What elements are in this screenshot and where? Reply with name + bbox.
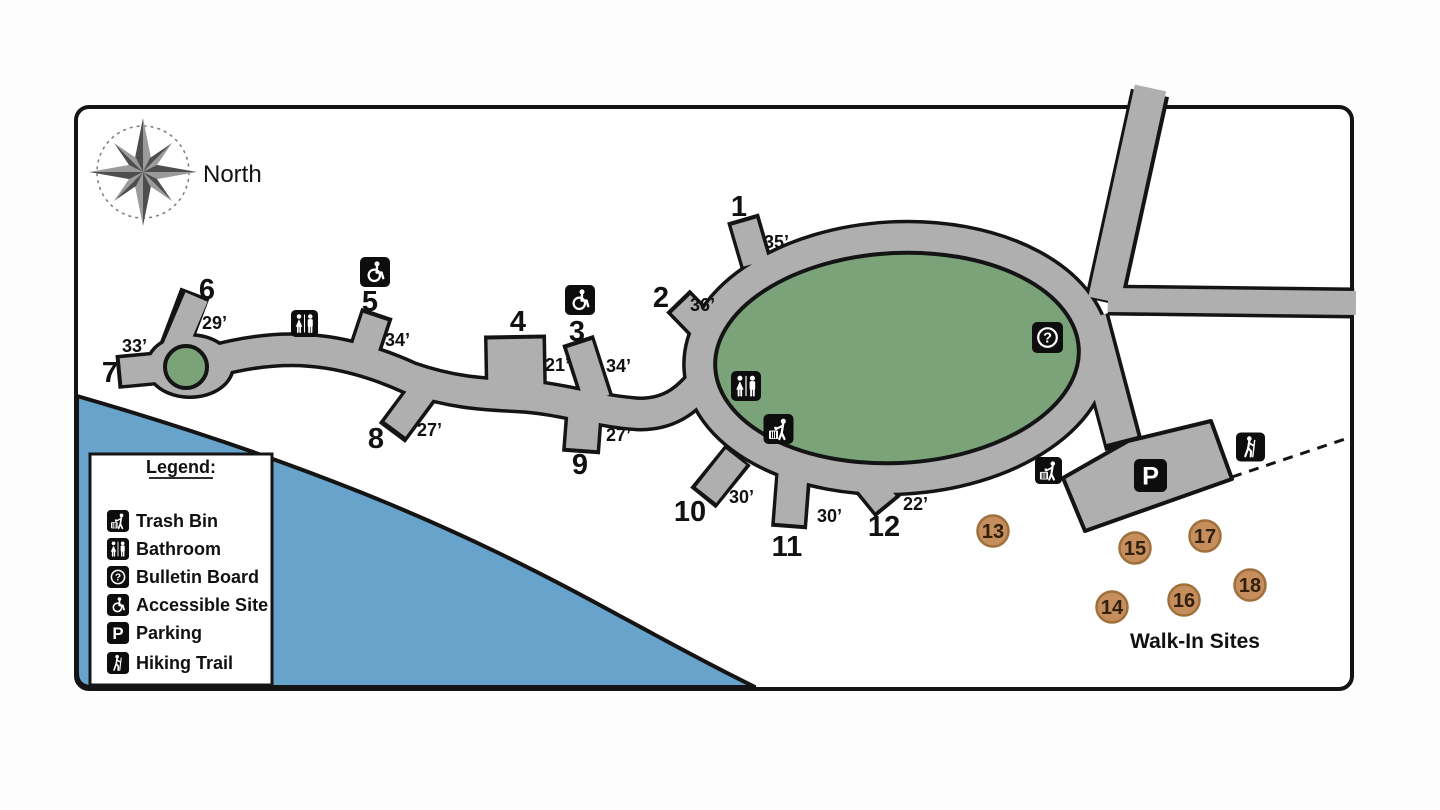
site-number: 3 bbox=[569, 316, 585, 348]
walk-in-site-number: 16 bbox=[1173, 590, 1195, 612]
legend-item-label: Accessible Site bbox=[136, 595, 268, 615]
site-number: 12 bbox=[868, 511, 900, 543]
walk-in-sites-label: Walk-In Sites bbox=[1130, 630, 1260, 653]
hiking-trail-icon bbox=[1236, 433, 1265, 462]
east-exit-road bbox=[1108, 300, 1356, 303]
legend-item-label: Parking bbox=[136, 623, 202, 643]
trash-bin-icon bbox=[107, 510, 129, 532]
site-distance: 30’ bbox=[817, 506, 842, 526]
site-spur-11 bbox=[789, 466, 793, 524]
site-distance: 34’ bbox=[385, 330, 410, 350]
bulletin-board-icon bbox=[107, 566, 129, 588]
site-spur-5 bbox=[361, 317, 376, 361]
site-spur-4 bbox=[515, 339, 516, 391]
legend-item-label: Bulletin Board bbox=[136, 567, 259, 587]
north-label: North bbox=[203, 161, 262, 188]
walk-in-site-marker: 14 bbox=[1097, 592, 1128, 623]
site-number: 5 bbox=[362, 286, 378, 318]
legend-item-label: Trash Bin bbox=[136, 511, 218, 531]
legend: Legend: Trash Bin Bathroom Bulletin Boar… bbox=[90, 454, 272, 685]
legend-item: Bathroom bbox=[107, 538, 221, 560]
site-number: 9 bbox=[572, 449, 588, 481]
walk-in-site-number: 18 bbox=[1239, 575, 1261, 597]
walk-in-site-number: 14 bbox=[1101, 597, 1124, 619]
site-distance: 30’ bbox=[729, 487, 754, 507]
site-number: 2 bbox=[653, 282, 669, 314]
walk-in-site-number: 17 bbox=[1194, 526, 1216, 548]
walk-in-site-marker: 18 bbox=[1235, 570, 1266, 601]
site-number: 11 bbox=[772, 531, 803, 563]
site-distance: 35’ bbox=[764, 232, 789, 252]
site-spur-9 bbox=[581, 400, 585, 449]
site-number: 4 bbox=[510, 306, 526, 338]
site-number: 7 bbox=[102, 357, 118, 389]
legend-item: Parking bbox=[107, 622, 202, 644]
bathroom-icon bbox=[107, 538, 129, 560]
accessible-site-icon bbox=[360, 257, 390, 287]
site-distance: 34’ bbox=[606, 356, 631, 376]
walk-in-site-number: 15 bbox=[1124, 538, 1146, 560]
site-spur-1 bbox=[744, 222, 756, 263]
hiking-trail-icon bbox=[107, 652, 129, 674]
site-number: 6 bbox=[199, 274, 215, 306]
site-number: 10 bbox=[674, 496, 706, 528]
site-distance: 29’ bbox=[202, 313, 227, 333]
walk-in-site-marker: 16 bbox=[1169, 585, 1200, 616]
legend-title: Legend: bbox=[146, 457, 216, 477]
walk-in-site-marker: 15 bbox=[1120, 533, 1151, 564]
roundabout-island bbox=[165, 346, 207, 388]
walk-in-site-marker: 17 bbox=[1190, 521, 1221, 552]
site-distance: 33’ bbox=[122, 336, 147, 356]
legend-item-label: Hiking Trail bbox=[136, 653, 233, 673]
accessible-site-icon bbox=[565, 285, 595, 315]
bathroom-icon bbox=[731, 371, 761, 401]
site-number: 8 bbox=[368, 423, 384, 455]
site-number: 1 bbox=[731, 191, 747, 223]
parking-icon bbox=[107, 622, 129, 644]
trash-bin-icon bbox=[764, 414, 794, 444]
legend-item: Hiking Trail bbox=[107, 652, 233, 674]
bathroom-icon bbox=[291, 310, 318, 337]
legend-item-label: Bathroom bbox=[136, 539, 221, 559]
site-distance: 36’ bbox=[690, 295, 715, 315]
legend-item: Trash Bin bbox=[107, 510, 218, 532]
campground-map: ? P bbox=[0, 0, 1440, 810]
trash-bin-icon bbox=[1035, 457, 1062, 484]
site-spur-3 bbox=[580, 344, 598, 399]
site-distance: 21’ bbox=[545, 355, 570, 375]
site-spur-7 bbox=[121, 368, 160, 372]
bulletin-board-icon bbox=[1032, 322, 1063, 353]
site-distance: 27’ bbox=[606, 425, 631, 445]
site-distance: 22’ bbox=[903, 494, 928, 514]
walk-in-site-number: 13 bbox=[982, 521, 1004, 543]
parking-icon bbox=[1134, 459, 1167, 492]
accessible-site-icon bbox=[107, 594, 129, 616]
site-distance: 27’ bbox=[417, 420, 442, 440]
walk-in-site-marker: 13 bbox=[978, 516, 1009, 547]
